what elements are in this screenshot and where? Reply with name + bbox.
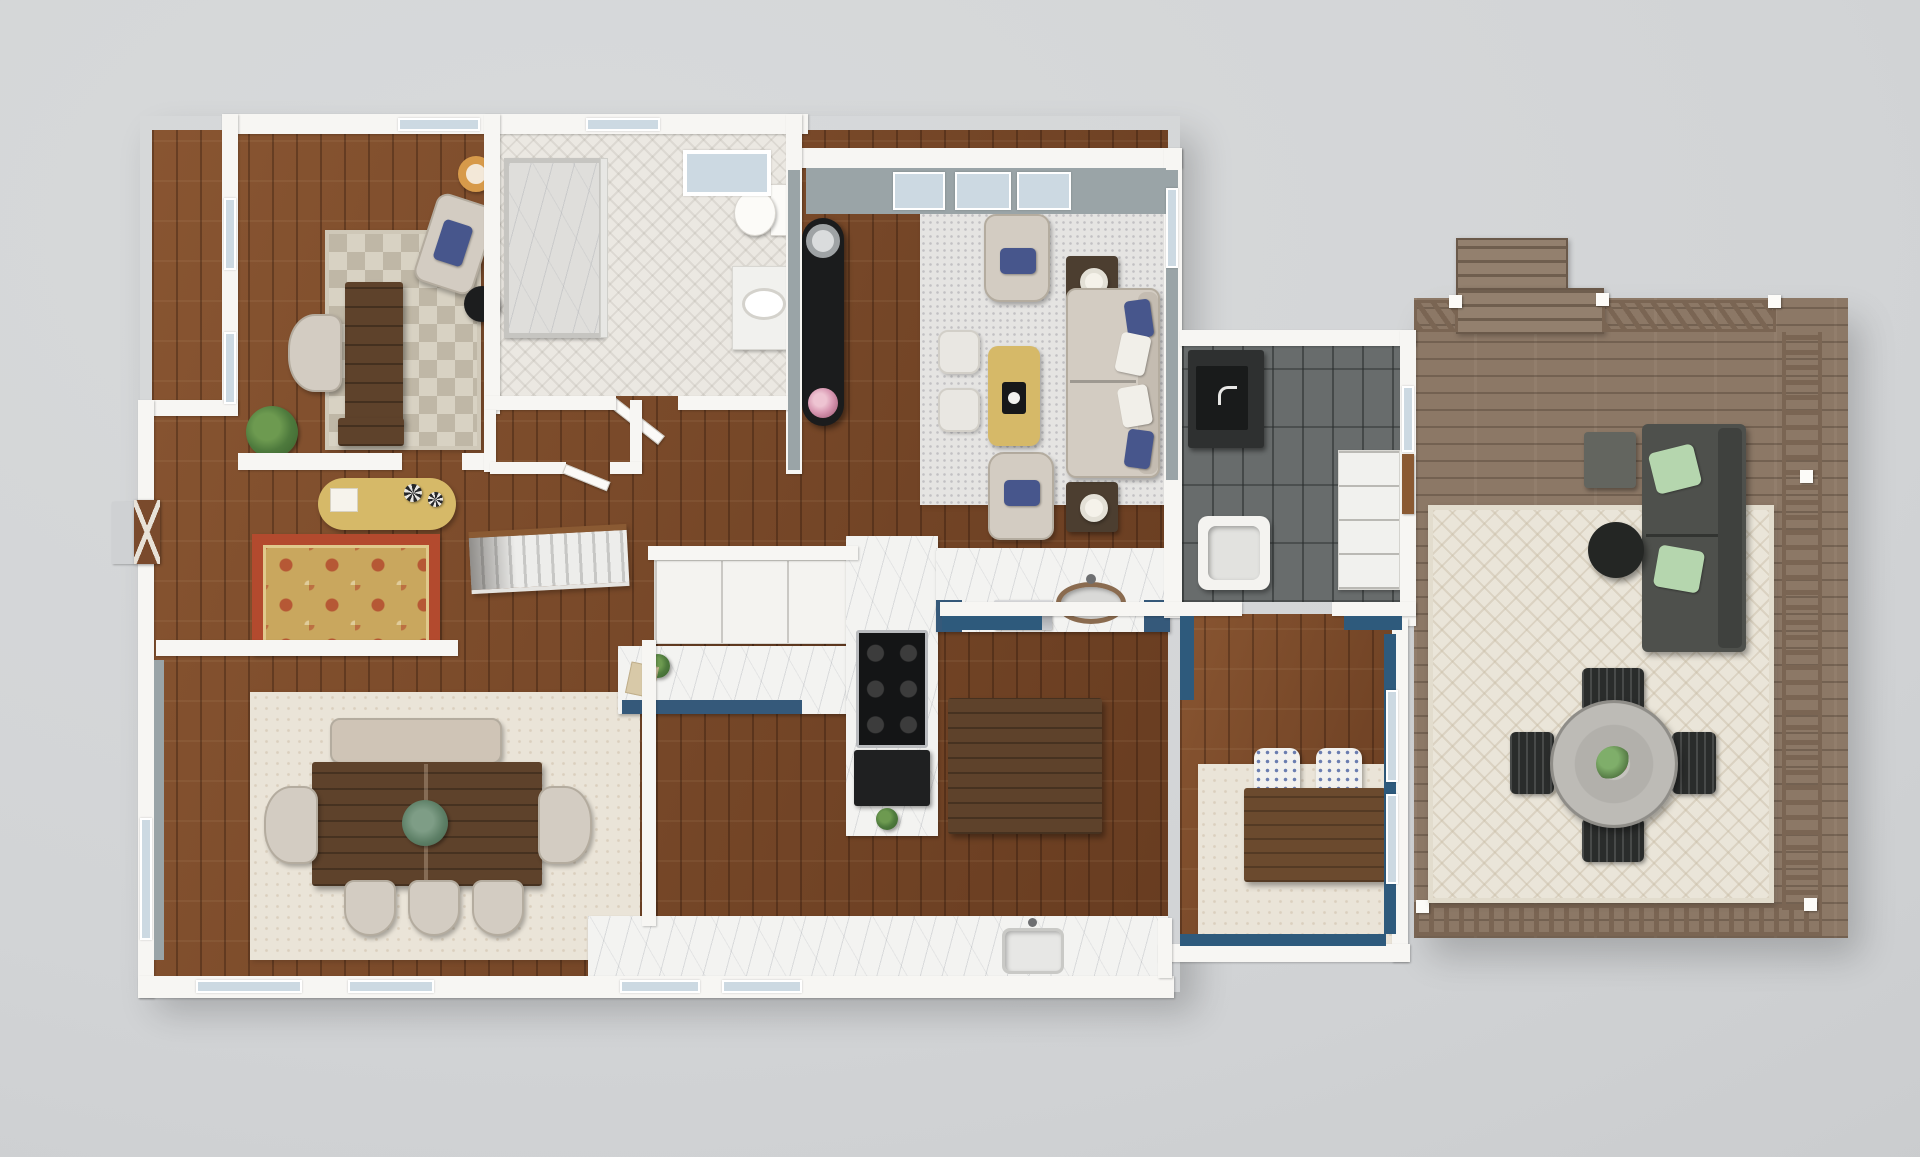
- navy-accent-wall: [1344, 616, 1402, 630]
- outdoor-sofa-back: [1718, 428, 1742, 648]
- vanity-sink: [742, 288, 786, 320]
- deck-stairs-lower: [1456, 288, 1604, 334]
- dining-centerpiece: [402, 800, 448, 846]
- office-desk: [345, 282, 403, 422]
- gas-cooktop: [856, 630, 928, 748]
- console-jar: [428, 492, 443, 507]
- green-pillow: [1653, 544, 1706, 593]
- front-door: [134, 500, 160, 564]
- wall: [940, 602, 1242, 616]
- utility-faucet: [1218, 386, 1237, 405]
- mudroom-wood-door: [1402, 454, 1414, 514]
- office-plant: [246, 406, 298, 458]
- dining-wall-face: [154, 660, 164, 960]
- navy-accent-wall: [1384, 634, 1396, 934]
- deck-railing-right: [1782, 332, 1822, 910]
- deck-railing-top: [1602, 300, 1776, 332]
- deck-railing-bottom: [1414, 904, 1822, 936]
- armchair-pillow: [1000, 248, 1036, 274]
- outdoor-coffee-table: [1588, 522, 1644, 578]
- front-step: [112, 502, 134, 564]
- living-window: [955, 172, 1011, 210]
- armchair-pillow: [1004, 480, 1040, 506]
- living-window: [893, 172, 945, 210]
- outdoor-sofa-seam: [1646, 534, 1718, 537]
- mudroom-shelving: [1338, 450, 1400, 590]
- deck-post-cap: [1449, 295, 1462, 308]
- window: [1166, 188, 1178, 268]
- kitchen-counter-south: [588, 916, 1168, 984]
- outdoor-chair-east: [1672, 732, 1716, 794]
- counter-plant: [876, 808, 898, 830]
- dining-chair: [408, 880, 460, 936]
- wall: [490, 462, 566, 474]
- walk-in-shower: [504, 158, 604, 338]
- window: [140, 818, 152, 940]
- wall: [648, 546, 858, 560]
- floorplan-scene: [0, 0, 1920, 1157]
- toilet-bowl: [734, 190, 776, 236]
- window: [224, 198, 236, 270]
- table-lamp: [1080, 494, 1108, 522]
- mudroom-glass-door: [1402, 386, 1414, 452]
- pouf-ottoman: [938, 330, 980, 374]
- window: [348, 980, 434, 993]
- dining-bench: [330, 718, 502, 764]
- office-desk-return: [338, 418, 404, 446]
- wall: [1158, 918, 1172, 978]
- nook-table: [1244, 788, 1386, 882]
- pantry-cabinets: [654, 560, 852, 644]
- console-flowers: [808, 388, 838, 418]
- window: [196, 980, 302, 993]
- dining-chair: [472, 880, 524, 936]
- outdoor-side-table: [1584, 432, 1636, 488]
- tray-cup: [1008, 392, 1020, 404]
- skylight: [683, 150, 771, 196]
- wall: [1180, 330, 1416, 346]
- window: [586, 118, 660, 131]
- wall: [1158, 944, 1410, 962]
- navy-accent-wall: [1180, 934, 1386, 946]
- wall: [1332, 602, 1416, 616]
- kitchen-island: [948, 698, 1102, 834]
- table-centerpiece-flowers: [1596, 746, 1632, 782]
- dining-chair: [344, 880, 396, 936]
- staircase: [468, 524, 629, 594]
- laundry-basin-inner: [1208, 526, 1260, 580]
- console-jar: [404, 484, 422, 502]
- deck-stairs-upper: [1456, 238, 1568, 290]
- living-window: [1017, 172, 1071, 210]
- wall: [238, 453, 402, 470]
- south-counter-sink: [1002, 928, 1064, 974]
- nook-window: [1386, 794, 1398, 884]
- desk-chair: [288, 314, 342, 392]
- dining-chair-west: [264, 786, 318, 864]
- sink-faucet: [1028, 918, 1037, 927]
- shower-glass: [600, 158, 608, 338]
- stair-descent-shadow: [469, 536, 518, 590]
- wall: [642, 640, 656, 926]
- navy-accent-wall: [942, 616, 1042, 630]
- window: [620, 980, 700, 993]
- wall: [484, 396, 616, 410]
- window: [398, 118, 480, 131]
- outdoor-chair-west: [1510, 732, 1554, 794]
- deck-post-cap: [1768, 295, 1781, 308]
- deck-post-cap: [1596, 293, 1609, 306]
- navy-accent-wall: [1180, 616, 1194, 700]
- wall: [678, 396, 790, 410]
- pouf-ottoman: [938, 388, 980, 432]
- console-book: [330, 488, 358, 512]
- wall: [792, 148, 1182, 168]
- wall: [484, 114, 500, 414]
- wall: [156, 640, 458, 656]
- sink-faucet: [1086, 574, 1096, 584]
- wall: [610, 462, 642, 474]
- black-lower-cabinet: [854, 750, 930, 806]
- dining-chair-east: [538, 786, 592, 864]
- sofa-pillow-navy: [1123, 428, 1154, 469]
- console-lamp: [806, 224, 840, 258]
- living-wall-face: [788, 170, 800, 470]
- nook-window: [1386, 690, 1398, 782]
- oriental-rug: [252, 534, 440, 656]
- wall: [222, 114, 808, 134]
- sofa-cushion-seam: [1070, 380, 1136, 383]
- deck-post-cap: [1800, 470, 1813, 483]
- window: [722, 980, 802, 993]
- window: [224, 332, 236, 404]
- deck-post-cap: [1804, 898, 1817, 911]
